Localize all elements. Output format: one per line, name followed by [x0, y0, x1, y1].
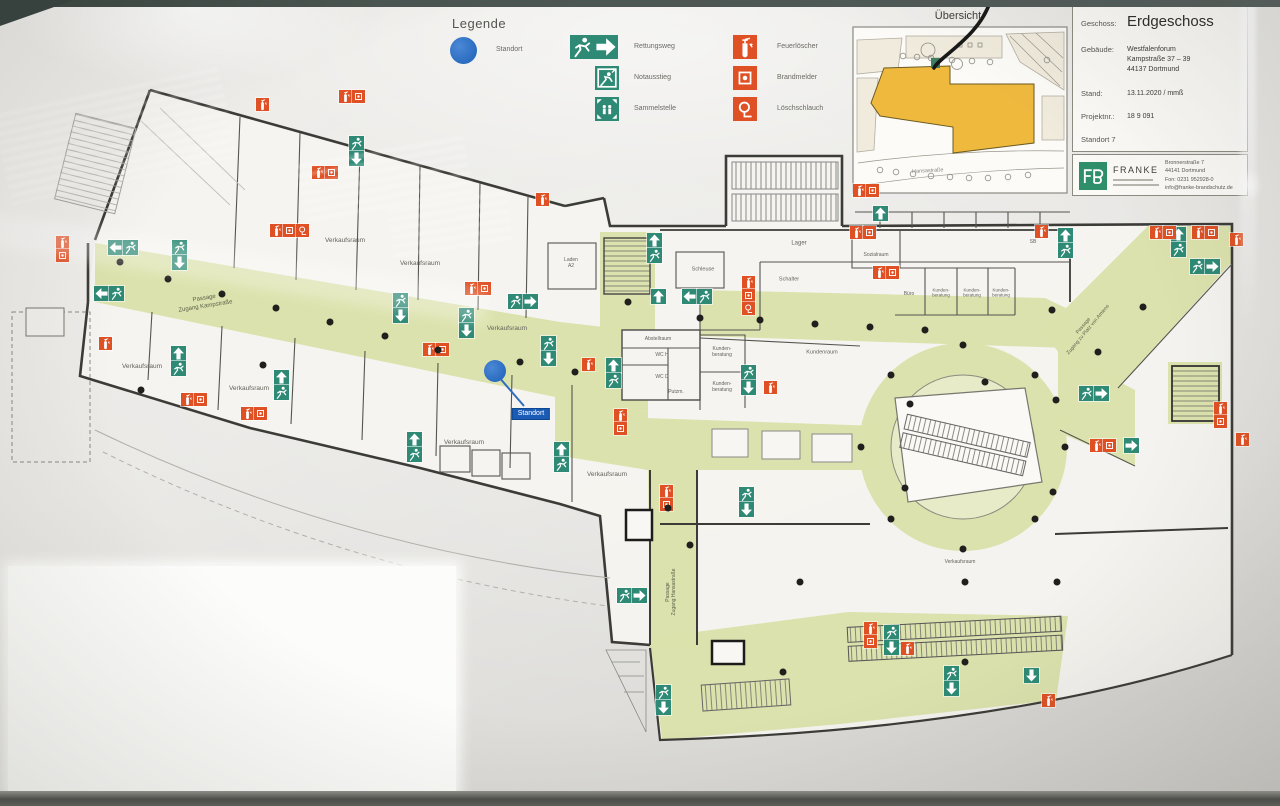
- column-dot: [1050, 489, 1057, 496]
- column-dot: [1032, 516, 1039, 523]
- passage-label: Passage Zugang zu Platz von Amiens: [1061, 300, 1111, 357]
- column-dot: [1140, 304, 1147, 311]
- fire-alarm-icon: [733, 66, 757, 90]
- geschoss-value: Erdgeschoss: [1127, 13, 1214, 30]
- geschoss-label: Geschoss:: [1081, 19, 1116, 28]
- column-dot: [962, 659, 969, 666]
- rescue-route-sign-icon: [739, 487, 754, 517]
- rescue-route-sign-icon: [407, 432, 422, 462]
- room-label: Kunden- beratung: [712, 346, 732, 358]
- rescue-route-sign-icon: [656, 685, 671, 715]
- column-dot: [327, 319, 334, 326]
- room-label: WC H: [655, 352, 668, 358]
- column-dot: [382, 333, 389, 340]
- fire-equipment-sign-icon: [853, 184, 879, 197]
- column-dot: [888, 372, 895, 379]
- room-label: Kunden- beratung: [712, 381, 732, 393]
- room-label: Büro: [904, 291, 915, 297]
- fire-extinguisher-icon: [733, 35, 757, 59]
- column-dot: [219, 291, 226, 298]
- standort-legend-dot-icon: [450, 37, 477, 64]
- fire-equipment-sign-icon: [1150, 226, 1176, 239]
- column-dot: [572, 369, 579, 376]
- rescue-route-sign-icon: [94, 286, 124, 301]
- fire-equipment-sign-icon: [536, 193, 549, 206]
- fire-equipment-sign-icon: [1035, 225, 1048, 238]
- rescue-route-sign-icon: [1124, 438, 1139, 453]
- rescue-route-sign-icon: [171, 346, 186, 376]
- fire-equipment-sign-icon: [901, 642, 914, 655]
- room-label: WC D: [655, 374, 668, 380]
- column-dot: [273, 305, 280, 312]
- rescue-route-sign-icon: [1058, 228, 1073, 258]
- room-label: Kunden- beratung: [963, 288, 981, 299]
- room-label: Laden A2: [564, 257, 578, 269]
- column-dot: [1095, 349, 1102, 356]
- franke-logo-icon: [1079, 162, 1107, 190]
- rescue-route-sign-icon: [508, 294, 538, 309]
- room-label: Schleuse: [692, 267, 715, 274]
- projektnr-label: Projektnr.:: [1081, 112, 1115, 121]
- column-dot: [907, 401, 914, 408]
- column-dot: [665, 505, 672, 512]
- legend-standort-label: Standort: [496, 46, 522, 53]
- rescue-route-sign-icon: [647, 233, 662, 263]
- room-label: Verkaufsraum: [229, 385, 269, 393]
- column-dot: [1054, 579, 1061, 586]
- fire-equipment-sign-icon: [339, 90, 365, 103]
- column-dot: [867, 324, 874, 331]
- legend-title: Legende: [452, 16, 506, 31]
- room-label: Verkaufsraum: [400, 260, 440, 268]
- fire-hose-icon: [733, 97, 757, 121]
- room-label: Abstellraum: [645, 336, 671, 342]
- fire-equipment-sign-icon: [764, 381, 777, 394]
- room-label: Verkaufsraum: [487, 325, 527, 333]
- column-dot: [780, 669, 787, 676]
- rescue-route-sign-icon: [541, 336, 556, 366]
- rescue-route-sign-icon: [617, 588, 647, 603]
- column-dot: [858, 444, 865, 451]
- fire-equipment-sign-icon: [582, 358, 595, 371]
- legend-item-label: Löschschlauch: [777, 105, 823, 112]
- column-dot: [888, 516, 895, 523]
- room-label: Verkaufsraum: [444, 439, 484, 447]
- rescue-route-sign-icon: [873, 206, 888, 221]
- rescue-route-sign-icon: [651, 289, 666, 304]
- column-dot: [260, 362, 267, 369]
- frame-top-edge: [0, 0, 1280, 7]
- rescue-route-sign-icon: [1190, 259, 1220, 274]
- room-label: Verkaufsraum: [122, 363, 162, 371]
- assembly-point-icon: [595, 97, 619, 121]
- standort-marker-label: Standort: [512, 408, 550, 420]
- room-label: Verkaufsraum: [945, 559, 976, 565]
- rescue-route-sign-icon: [274, 370, 289, 400]
- column-dot: [517, 359, 524, 366]
- emergency-exit-window-icon: [595, 66, 619, 90]
- column-dot: [902, 485, 909, 492]
- rescue-route-sign-icon: [682, 289, 712, 304]
- column-dot: [960, 342, 967, 349]
- column-dot: [922, 327, 929, 334]
- fire-equipment-sign-icon: [256, 98, 269, 111]
- fire-equipment-sign-icon: [181, 393, 207, 406]
- company-address: Bronnerstraße 7 44141 Dortmund Fon: 0231…: [1165, 159, 1233, 193]
- legend-item-label: Notausstieg: [634, 74, 671, 81]
- column-dot: [1062, 444, 1069, 451]
- info-panel: Geschoss: Erdgeschoss Gebäude: Westfalen…: [1072, 6, 1248, 152]
- column-dot: [1053, 397, 1060, 404]
- room-label: Kundenraum: [806, 350, 838, 357]
- legend-item-label: Rettungsweg: [634, 43, 675, 50]
- fire-equipment-sign-icon: [1214, 402, 1227, 428]
- rescue-route-sign-icon: [884, 625, 899, 655]
- rescue-route-sign-icon: [1024, 668, 1039, 683]
- fire-equipment-sign-icon: [873, 266, 899, 279]
- rescue-route-icon: [570, 35, 618, 59]
- column-dot: [138, 387, 145, 394]
- rescue-route-sign-icon: [606, 358, 621, 388]
- room-label: SB: [1030, 239, 1037, 245]
- fire-equipment-sign-icon: [99, 337, 112, 350]
- rescue-route-sign-icon: [1079, 386, 1109, 401]
- room-label: Schalter: [779, 277, 799, 284]
- fire-equipment-sign-icon: [270, 224, 309, 237]
- room-label: Verkaufsraum: [587, 471, 627, 479]
- glare-spot: [1236, 168, 1262, 202]
- column-dot: [982, 379, 989, 386]
- escape-plan-photo: Hansastraße VerkaufsraumVerkaufsraumVerk…: [0, 0, 1280, 806]
- stand-value: 13.11.2020 / mmß: [1127, 89, 1183, 99]
- rescue-route-sign-icon: [741, 365, 756, 395]
- room-label: Putzm.: [668, 389, 684, 395]
- column-dot: [697, 315, 704, 322]
- column-dot: [1049, 307, 1056, 314]
- fire-equipment-sign-icon: [1042, 694, 1055, 707]
- column-dot: [435, 347, 442, 354]
- column-dot: [757, 317, 764, 324]
- company-name: FRANKE: [1113, 165, 1159, 175]
- company-tagline-bar: [1113, 179, 1153, 181]
- overview-title: Übersicht: [903, 10, 1013, 22]
- column-dot: [962, 579, 969, 586]
- rescue-route-sign-icon: [944, 666, 959, 696]
- legend-item-label: Feuerlöscher: [777, 43, 818, 50]
- projektnr-value: 18 9 091: [1127, 112, 1154, 122]
- column-dot: [165, 276, 172, 283]
- column-dot: [625, 299, 632, 306]
- column-dot: [960, 546, 967, 553]
- column-dot: [812, 321, 819, 328]
- frame-bottom-edge: [0, 791, 1280, 806]
- fire-equipment-sign-icon: [850, 226, 876, 239]
- gebaeude-value: Westfalenforum Kampstraße 37 – 39 44137 …: [1127, 45, 1190, 75]
- passage-label: Passage Zugang Hansastraße: [665, 569, 678, 616]
- rescue-route-sign-icon: [554, 442, 569, 472]
- room-label: Sozialraum: [863, 252, 888, 258]
- stand-label: Stand:: [1081, 89, 1103, 98]
- company-panel: FRANKE Bronnerstraße 7 44141 Dortmund Fo…: [1072, 154, 1248, 196]
- column-dot: [1032, 372, 1039, 379]
- fire-equipment-sign-icon: [1236, 433, 1249, 446]
- fire-equipment-sign-icon: [614, 409, 627, 435]
- legend-item-label: Sammelstelle: [634, 105, 676, 112]
- room-label: Verkaufsraum: [325, 237, 365, 245]
- fire-equipment-sign-icon: [241, 407, 267, 420]
- gebaeude-label: Gebäude:: [1081, 45, 1114, 54]
- fire-equipment-sign-icon: [1192, 226, 1218, 239]
- frame-corner: [0, 0, 74, 26]
- room-label: Lager: [791, 240, 806, 247]
- column-dot: [687, 542, 694, 549]
- legend-item-label: Brandmelder: [777, 74, 817, 81]
- fire-equipment-sign-icon: [864, 622, 877, 648]
- standort-number: Standort 7: [1081, 135, 1116, 144]
- column-dot: [797, 579, 804, 586]
- standort-marker-dot: [484, 360, 506, 382]
- room-label: Kunden- beratung: [932, 288, 950, 299]
- company-tagline-bar: [1113, 184, 1159, 186]
- fire-equipment-sign-icon: [1090, 439, 1116, 452]
- room-label: Kunden- beratung: [992, 288, 1010, 299]
- blanked-region: [8, 566, 456, 792]
- fire-equipment-sign-icon: [742, 276, 755, 315]
